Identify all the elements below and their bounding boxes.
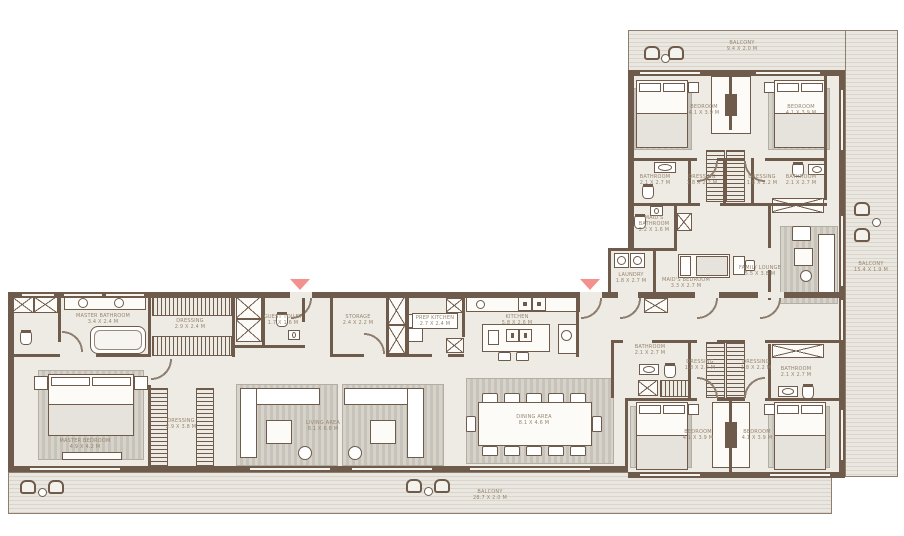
balcony-chair [434, 479, 450, 493]
room-dims: 2.9 x 2.4 M [160, 324, 220, 330]
room-label-balcony-bottom: Balcony28.7 x 2.0 M [460, 489, 520, 501]
dining-chair [466, 416, 476, 432]
room-dims: 2.1 x 2.7 M [776, 180, 826, 186]
room-dims: 2.7 x 2.4 M [413, 321, 457, 327]
kitchen-sink [476, 300, 485, 309]
nightstand [34, 376, 48, 390]
room-label-kitchen: Kitchen5.8 x 2.6 M [487, 314, 547, 326]
room-label-maids-bedroom: Maid's Bedroom3.3 x 2.7 M [661, 277, 711, 289]
dining-chair [592, 416, 602, 432]
sink [778, 386, 798, 397]
balcony-right [845, 30, 898, 477]
shower [638, 380, 658, 396]
wardrobe-hatch [152, 296, 232, 316]
room-dims: 9.4 x 2.0 M [712, 46, 772, 52]
balcony-bottom [8, 472, 832, 514]
duct-shaft [236, 296, 262, 319]
toilet [642, 184, 654, 199]
room-label-master-bathroom: Master Bathroom3.4 x 2.4 M [73, 313, 133, 325]
island-sink [488, 330, 499, 345]
sink [654, 162, 676, 173]
room-label-bathroom-tr: Bathroom2.1 x 2.7 M [776, 174, 826, 186]
cabinet [408, 328, 423, 342]
room-label-guest-toilet: Guest Toilet1.7 x 1.6 M [261, 314, 305, 326]
bar-stool [498, 352, 511, 361]
side-table [348, 446, 362, 460]
room-dims: 5.5 x 3.8 M [735, 271, 785, 277]
room-label-prep-kitchen: Prep Kitchen2.7 x 2.4 M [412, 313, 458, 329]
balcony-chair [668, 46, 684, 60]
room-label-family-lounge: Family Lounge5.5 x 3.8 M [735, 265, 785, 277]
duct-shaft [236, 319, 262, 342]
room-dims: 2.1 x 2.7 M [625, 350, 675, 356]
room-dims: 8.1 x 6.8 M [293, 426, 353, 432]
room-label-dressing-ll: Dressing1.8 x 2.2 M [680, 359, 720, 371]
room-dims: 2.4 x 2.2 M [333, 320, 383, 326]
basin [78, 298, 88, 308]
balcony-chair [854, 202, 870, 216]
room-dims: 4.1 x 3.9 M [732, 435, 782, 441]
room-label-bathroom-br: Bathroom2.1 x 2.7 M [771, 366, 821, 378]
washing-machine [614, 253, 629, 268]
room-label-bedroom-bl: Bedroom4.1 x 3.9 M [673, 429, 723, 441]
toilet [802, 384, 814, 399]
bed-bench [62, 452, 122, 460]
room-name: Maid's Bathroom [632, 215, 676, 227]
sofa [818, 234, 835, 296]
room-dims: 1.8 x 2.2 M [742, 180, 782, 186]
room-dims: 8.1 x 4.6 M [504, 420, 564, 426]
entrance-arrow-icon [290, 279, 310, 290]
room-label-dining-area: Dining Area8.1 x 4.6 M [504, 414, 564, 426]
wardrobe-hatch [660, 380, 690, 397]
room-label-master-bedroom: Master Bedroom4.9 x 4.2 M [55, 438, 115, 450]
room-dims: 15.4 x 1.9 M [846, 267, 896, 273]
sofa [240, 388, 257, 458]
room-label-balcony-top: Balcony9.4 x 2.0 M [712, 40, 772, 52]
vanity-counter [64, 296, 146, 310]
room-label-master-dressing: Dressing2.9 x 2.4 M [160, 318, 220, 330]
wardrobe-hatch [152, 336, 232, 356]
oven [518, 297, 532, 311]
closet [772, 344, 824, 358]
armchair [792, 226, 811, 241]
room-label-walk-dressing: Dressing2.9 x 3.8 M [159, 418, 203, 430]
bathtub [90, 326, 146, 354]
balcony-table [872, 218, 881, 227]
room-label-bedroom-tr: Bedroom4.1 x 3.9 M [776, 104, 826, 116]
room-dims: 4.1 x 3.9 M [673, 435, 723, 441]
dining-chair [570, 446, 586, 456]
floor-plan: Master Bathroom3.4 x 2.4 M Dressing2.9 x… [0, 0, 904, 536]
nightstand [764, 82, 775, 93]
toilet [20, 330, 32, 345]
balcony-chair [854, 228, 870, 242]
side-table [800, 270, 812, 282]
room-label-maids-bathroom: Maid's Bathroom2.2 x 1.6 M [632, 215, 676, 233]
oven [532, 297, 546, 311]
room-dims: 1.8 x 2.2 M [680, 365, 720, 371]
duct-shaft [388, 325, 406, 354]
balcony-chair [48, 480, 64, 494]
room-label-living-area: Living Area8.1 x 6.8 M [293, 420, 353, 432]
room-label-dressing-ul: Dressing1.8 x 2.2 M [682, 174, 722, 186]
nightstand [134, 376, 148, 390]
room-label-laundry: Laundry1.8 x 2.7 M [608, 272, 654, 284]
dining-chair [548, 446, 564, 456]
sofa [407, 388, 424, 458]
toilet [664, 363, 676, 378]
room-dims: 2.2 x 1.6 M [632, 227, 676, 233]
nightstand [688, 404, 699, 415]
side-table [298, 446, 312, 460]
room-label-balcony-right: Balcony15.4 x 1.9 M [846, 261, 896, 273]
dining-chair [526, 446, 542, 456]
washing-machine [630, 253, 645, 268]
room-dims: 4.9 x 4.2 M [55, 444, 115, 450]
room-dims: 3.4 x 2.4 M [73, 319, 133, 325]
balcony-chair [644, 46, 660, 60]
room-dims: 28.7 x 2.0 M [460, 495, 520, 501]
room-dims: 4.1 x 3.9 M [776, 110, 826, 116]
coffee-table [794, 248, 813, 266]
hob [506, 329, 519, 342]
balcony-table [661, 54, 670, 63]
sink [288, 330, 300, 340]
balcony-chair [406, 479, 422, 493]
room-dims: 1.8 x 2.2 M [736, 365, 776, 371]
bar-stool [516, 352, 529, 361]
duct-shaft [388, 296, 406, 325]
dining-chair [504, 446, 520, 456]
hob [519, 329, 532, 342]
balcony-chair [20, 480, 36, 494]
dining-chair [482, 446, 498, 456]
room-label-dressing-lr: Dressing1.8 x 2.2 M [736, 359, 776, 371]
nightstand [688, 82, 699, 93]
blanket [696, 256, 728, 276]
room-dims: 2.1 x 2.7 M [771, 372, 821, 378]
room-dims: 2.1 x 2.7 M [630, 180, 680, 186]
balcony-table [424, 487, 433, 496]
coffee-table [266, 420, 292, 444]
entrance-arrow-icon [580, 279, 600, 290]
room-dims: 4.1 x 3.9 M [679, 110, 729, 116]
shower [12, 296, 34, 313]
room-dims: 1.8 x 2.2 M [682, 180, 722, 186]
basin [114, 298, 124, 308]
duct-shaft [446, 338, 464, 353]
duct-shaft [644, 298, 668, 313]
coffee-table [370, 420, 396, 444]
room-dims: 5.8 x 2.6 M [487, 320, 547, 326]
room-dims: 2.9 x 3.8 M [159, 424, 203, 430]
pillow [680, 256, 691, 276]
room-label-bedroom-br: Bedroom4.1 x 3.9 M [732, 429, 782, 441]
room-dims: 1.8 x 2.7 M [608, 278, 654, 284]
sink [639, 364, 659, 375]
room-label-bathroom-tl: Bathroom2.1 x 2.7 M [630, 174, 680, 186]
closet [34, 296, 58, 313]
room-label-storage: Storage2.4 x 2.2 M [333, 314, 383, 326]
room-label-dressing-ur: Dressing1.8 x 2.2 M [742, 174, 782, 186]
balcony-table [38, 488, 47, 497]
room-label-bathroom-bl: Bathroom2.1 x 2.7 M [625, 344, 675, 356]
room-dims: 3.3 x 2.7 M [661, 283, 711, 289]
nightstand [764, 404, 775, 415]
master-bed [48, 374, 134, 436]
room-dims: 1.7 x 1.6 M [261, 320, 305, 326]
cabinet-knob [561, 330, 572, 341]
room-label-bedroom-tl: Bedroom4.1 x 3.9 M [679, 104, 729, 116]
duct-shaft [677, 213, 692, 231]
